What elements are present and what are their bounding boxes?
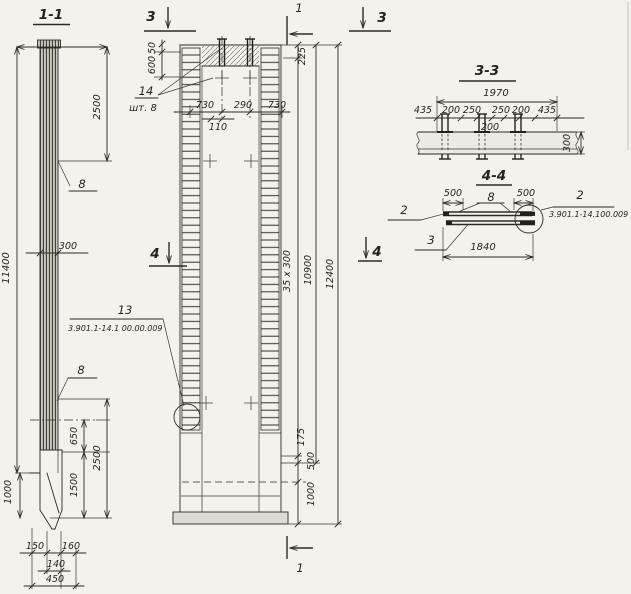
dim-300: 300: [59, 241, 77, 252]
dim-2500-top: 2500: [92, 94, 103, 119]
svg-text:3: 3: [377, 10, 386, 26]
dim-1500: 1500: [69, 473, 80, 497]
dim-50: 50: [147, 42, 158, 54]
dim-1840: 1840: [470, 242, 495, 253]
svg-text:8: 8: [487, 190, 494, 204]
svg-text:3: 3: [146, 9, 155, 25]
base-slab: [173, 512, 288, 524]
section-mark-3-left: 3: [144, 7, 196, 31]
slab-body-3-3: [417, 132, 578, 154]
section-mark-1-bottom: 1: [287, 536, 313, 575]
dim-730-right: 730: [268, 100, 286, 111]
dim-11400: 11400: [1, 252, 12, 284]
dim-730-left: 730: [196, 100, 214, 111]
dim-110: 110: [209, 122, 227, 133]
rebar-callout-8-upper: 8: [78, 177, 85, 191]
dim-600: 600: [147, 56, 158, 74]
section-3-3-view: 3-3 1970 435 200 250 250 200 435 200: [414, 63, 585, 159]
section-4-4-title: 4-4: [481, 168, 506, 184]
section-3-3-title: 3-3: [475, 63, 499, 79]
pile-tip: [30, 450, 62, 529]
dim-435-left: 435: [414, 105, 432, 116]
section-1-1-title: 1-1: [39, 7, 63, 23]
dim-175: 175: [296, 428, 307, 446]
dim-290: 290: [234, 100, 252, 111]
dim-150: 150: [26, 541, 44, 552]
elevation-view: 3 1 3 4 4 1: [68, 1, 391, 575]
svg-text:2: 2: [576, 188, 583, 202]
section-mark-1-top: 1: [287, 1, 313, 45]
detail-circle-2: [515, 205, 543, 233]
svg-text:1: 1: [295, 1, 302, 15]
callout-pos-2-right: 2 3.901.1-14.100.009: [541, 188, 628, 219]
svg-text:шт. 8: шт. 8: [129, 103, 157, 114]
callout-pos-3: 3: [415, 225, 468, 251]
dim-225: 225: [297, 47, 308, 65]
dim-435-right: 435: [538, 105, 556, 116]
drawing-sheet: 1-1 11400 2500 8 300 8 650: [0, 0, 631, 594]
svg-text:4: 4: [371, 244, 381, 260]
callout-pos-2-left: 2: [388, 203, 444, 220]
svg-text:2: 2: [400, 203, 407, 217]
dim-140: 140: [47, 559, 65, 570]
svg-text:3: 3: [427, 233, 434, 247]
dim-2500-bottom: 2500: [92, 445, 103, 470]
svg-text:4: 4: [149, 246, 159, 262]
svg-text:1: 1: [296, 561, 303, 575]
dim-300-height: 300: [562, 134, 573, 152]
dim-500-right: 500: [517, 188, 535, 199]
dim-500: 500: [306, 452, 317, 470]
dim-10900: 10900: [303, 255, 314, 285]
technical-drawing: 1-1 11400 2500 8 300 8 650: [0, 0, 631, 594]
dim-12400: 12400: [325, 259, 336, 289]
section-mark-4-right: 4: [358, 237, 382, 261]
svg-text:13: 13: [118, 303, 133, 317]
dim-650: 650: [69, 427, 80, 445]
dim-500-left: 500: [444, 188, 462, 199]
dim-35x300: 35 x 300: [282, 250, 293, 292]
ref-document-13: 3.901.1-14.1 00.00.009: [68, 324, 163, 333]
dim-450: 450: [46, 574, 64, 585]
section-mark-3-right: 3: [349, 7, 391, 31]
plate-pair-4-4: [443, 212, 535, 225]
dim-250-right: 250: [492, 105, 510, 116]
section-mark-4-left: 4: [149, 242, 187, 266]
dim-1970: 1970: [483, 88, 508, 99]
dim-160: 160: [62, 541, 80, 552]
svg-text:14: 14: [139, 84, 154, 98]
dim-1000: 1000: [306, 482, 317, 506]
callout-pos-8: 8: [458, 190, 511, 212]
dim-1000-left: 1000: [3, 480, 14, 504]
section-1-1-view: 1-1 11400 2500 8 300 8 650: [1, 7, 112, 589]
pile-shaft: [40, 48, 58, 450]
rebar-callout-8-lower: 8: [77, 363, 84, 377]
ref-document-2: 3.901.1-14.100.009: [549, 210, 628, 219]
section-4-4-view: 4-4 500 500 8 2: [388, 168, 628, 261]
